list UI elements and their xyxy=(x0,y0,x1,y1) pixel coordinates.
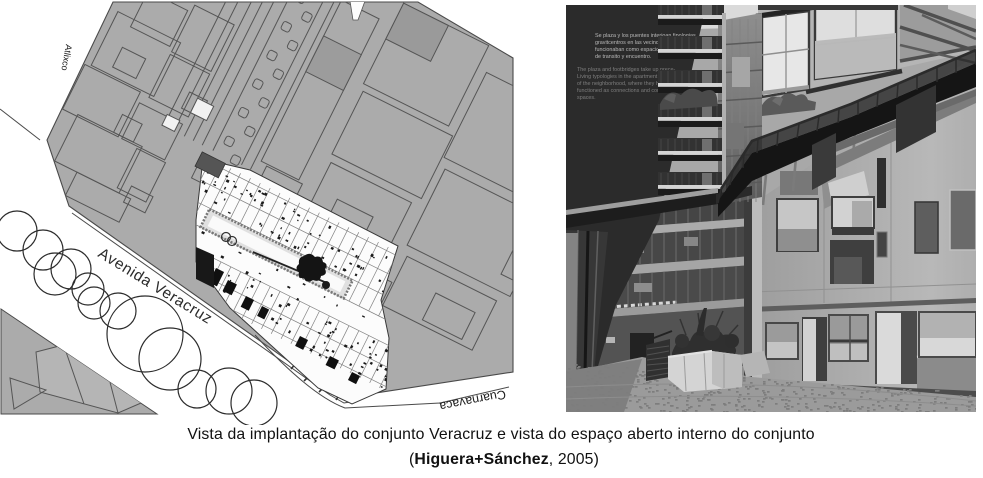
svg-text:Atlixco: Atlixco xyxy=(59,44,73,72)
svg-text:of the neighborhood, where the: of the neighborhood, where they have xyxy=(577,81,668,87)
svg-text:Cuarnavaca: Cuarnavaca xyxy=(438,387,507,414)
svg-text:de transito y encuentro.: de transito y encuentro. xyxy=(595,54,651,60)
svg-text:spaces.: spaces. xyxy=(577,95,596,101)
